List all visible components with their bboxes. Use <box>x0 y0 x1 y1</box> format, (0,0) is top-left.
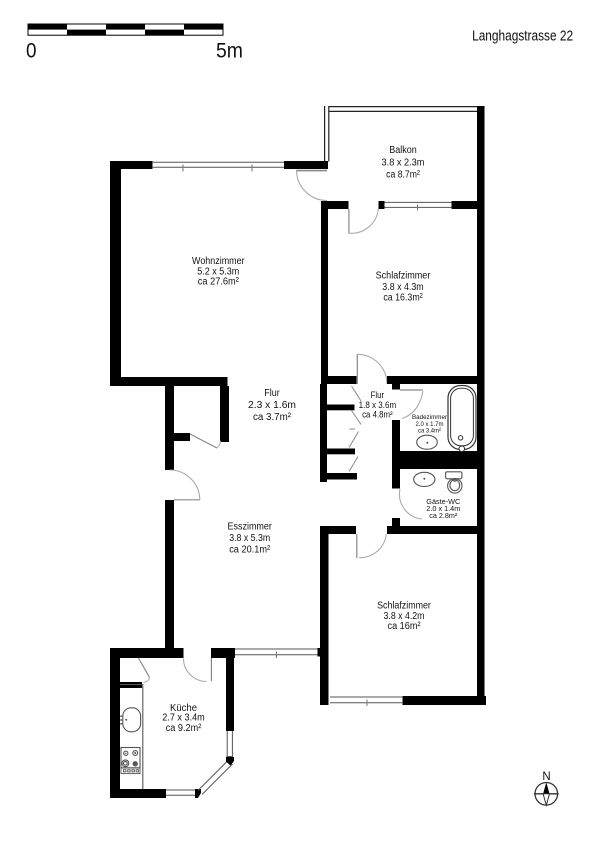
svg-text:Schlafzimmer: Schlafzimmer <box>376 271 431 282</box>
svg-text:Langhagstrasse 22: Langhagstrasse 22 <box>472 28 573 44</box>
svg-text:ca 2.8m²: ca 2.8m² <box>429 511 458 520</box>
svg-text:Wohnzimmer: Wohnzimmer <box>192 256 245 267</box>
svg-text:ca 8.7m²: ca 8.7m² <box>386 169 420 180</box>
svg-text:2.3 x 1.6m: 2.3 x 1.6m <box>248 400 296 411</box>
svg-text:ca 4.8m²: ca 4.8m² <box>362 410 393 420</box>
svg-text:Badezimmer: Badezimmer <box>412 414 448 421</box>
svg-text:ca 27.6m²: ca 27.6m² <box>198 276 240 287</box>
svg-text:ca 16m²: ca 16m² <box>388 621 422 632</box>
svg-text:Esszimmer: Esszimmer <box>228 522 273 533</box>
svg-text:5m: 5m <box>216 39 243 63</box>
svg-text:1.8 x 3.6m: 1.8 x 3.6m <box>359 400 397 410</box>
svg-text:ca 3.7m²: ca 3.7m² <box>253 412 292 423</box>
svg-text:3.8 x 5.3m: 3.8 x 5.3m <box>229 533 270 544</box>
svg-text:Flur: Flur <box>371 390 385 400</box>
svg-text:Balkon: Balkon <box>389 145 417 156</box>
svg-text:ca 3.4m²: ca 3.4m² <box>418 428 442 435</box>
svg-text:3.8 x 2.3m: 3.8 x 2.3m <box>382 157 425 168</box>
svg-text:Flur: Flur <box>264 388 280 399</box>
svg-text:ca 20.1m²: ca 20.1m² <box>229 545 271 556</box>
svg-text:ca 9.2m²: ca 9.2m² <box>166 723 202 734</box>
svg-text:N: N <box>542 771 550 783</box>
svg-text:ca 16.3m²: ca 16.3m² <box>383 292 423 303</box>
svg-text:0: 0 <box>26 39 37 63</box>
